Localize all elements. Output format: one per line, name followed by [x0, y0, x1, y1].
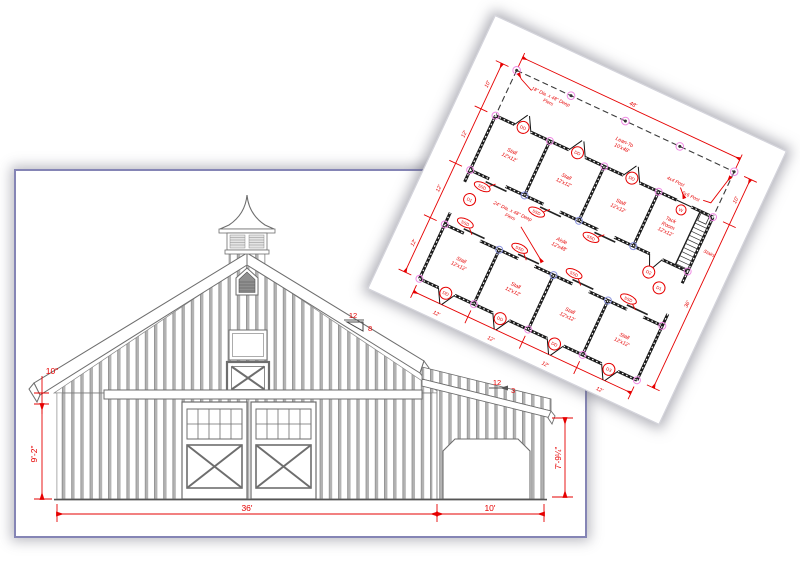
- dim-overhang: 10": [46, 366, 58, 376]
- leanto-posts: [512, 65, 740, 177]
- dim-leanto-height: 7'-9¼": [554, 447, 563, 470]
- pitch-leanto-rise: 3: [511, 386, 515, 395]
- cupola-louver-left: [230, 235, 245, 248]
- cupola-spire: [220, 195, 274, 229]
- sliding-door-left: [182, 402, 247, 499]
- leanto-opening: [443, 439, 530, 499]
- cupola-base-band: [225, 250, 269, 254]
- cupola-louver-right: [249, 235, 264, 248]
- plan-dim-bot-12b: 12': [486, 335, 496, 344]
- plan-dim-bot-12d: 12': [595, 386, 605, 395]
- cupola-brim: [219, 229, 275, 233]
- pitch-main-rise: 8: [368, 324, 372, 333]
- note-post-6x6: 6x6 Post: [681, 190, 701, 204]
- plan-dim-bot-12a: 12': [432, 310, 442, 319]
- corner-trim-left: [57, 393, 62, 499]
- sliding-door-right: [251, 402, 316, 499]
- corner-trim-right: [432, 393, 437, 499]
- note-post-4x4: 4x4 Post: [666, 175, 686, 189]
- pitch-main-run: 12: [349, 311, 357, 320]
- dim-leanto-width: 10': [484, 503, 495, 513]
- plan-dim-bot-12c: 12': [540, 361, 550, 370]
- pitch-leanto-run: 12: [493, 378, 501, 387]
- door-track: [104, 390, 422, 399]
- loft-window: [229, 330, 267, 360]
- dim-main-width: 36': [241, 503, 252, 513]
- plan-dim-48: 48': [628, 101, 638, 110]
- workspace: 10" 9'-2" 36' 10' 7'-9¼" 12 8 12 3: [0, 0, 800, 563]
- dim-wall-height: 9'-2": [29, 446, 39, 463]
